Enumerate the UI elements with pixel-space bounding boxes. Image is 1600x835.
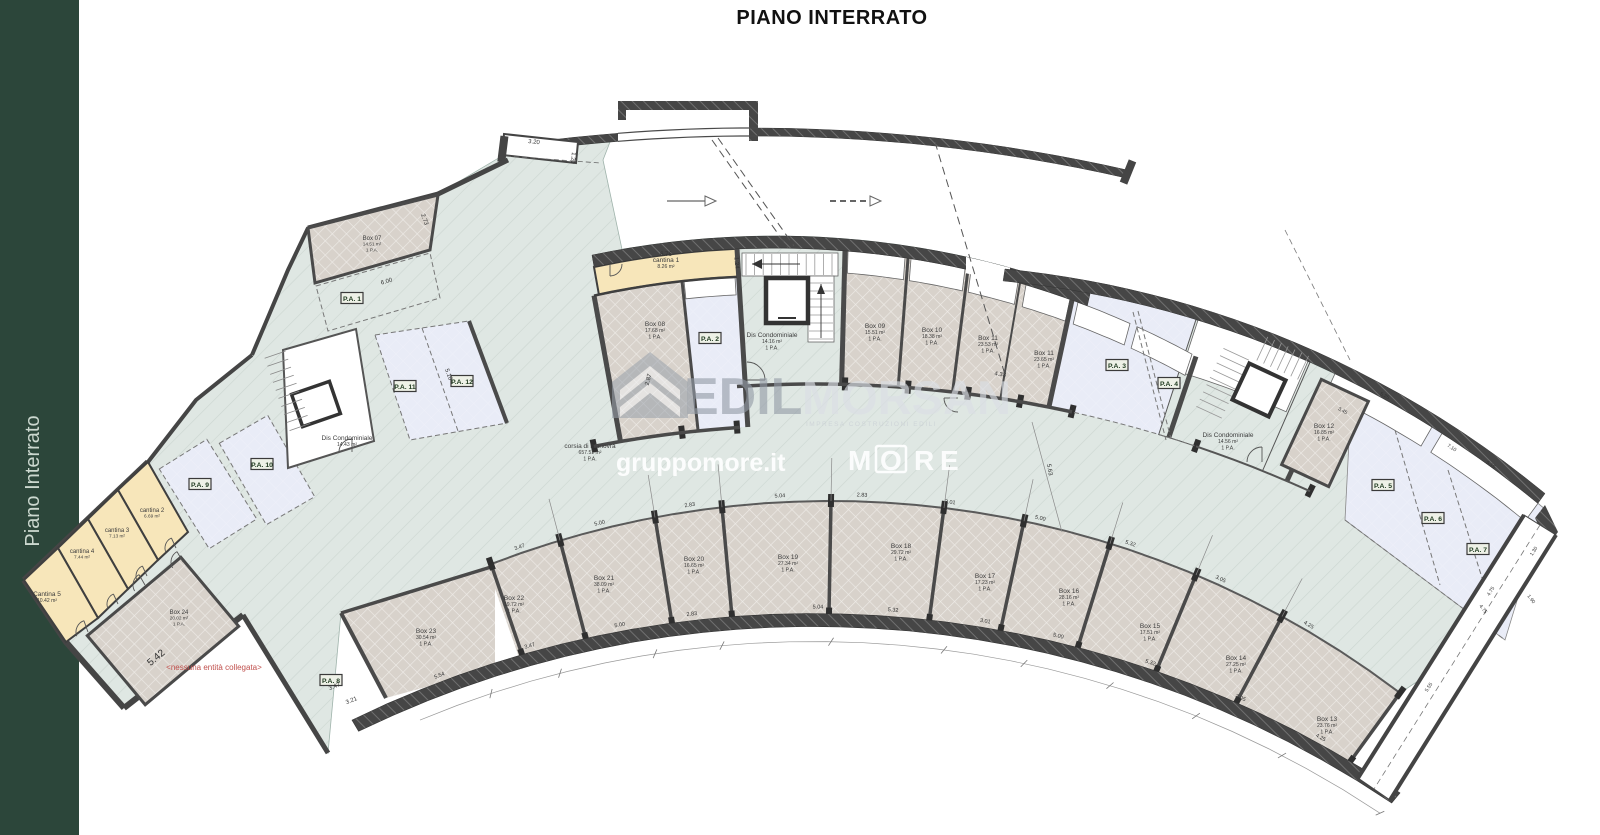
svg-text:2.83: 2.83	[857, 492, 868, 498]
svg-text:P.A. 3: P.A. 3	[1108, 363, 1126, 370]
svg-text:1 P.A.: 1 P.A.	[868, 336, 881, 342]
svg-text:1 P.A.: 1 P.A.	[1320, 729, 1333, 735]
svg-text:Box 18: Box 18	[891, 543, 912, 550]
svg-text:R: R	[914, 445, 934, 476]
svg-text:23.65 m²: 23.65 m²	[1034, 357, 1054, 363]
svg-text:P.A. 9: P.A. 9	[191, 482, 209, 489]
svg-text:1 P.A.: 1 P.A.	[597, 588, 610, 594]
svg-text:P.A. 10: P.A. 10	[251, 462, 273, 469]
svg-text:1.24: 1.24	[732, 257, 739, 270]
svg-text:Box 17: Box 17	[975, 573, 996, 580]
svg-text:Box 13: Box 13	[1317, 716, 1338, 723]
svg-text:6.69 m²: 6.69 m²	[144, 514, 160, 519]
svg-text:19.72 m²: 19.72 m²	[504, 602, 524, 608]
svg-text:1 P.A.: 1 P.A.	[1221, 445, 1234, 451]
svg-text:2.83: 2.83	[686, 611, 697, 618]
svg-text:7.44 m²: 7.44 m²	[74, 555, 90, 560]
svg-text:P.A. 4: P.A. 4	[1160, 381, 1178, 388]
svg-text:1 P.A.: 1 P.A.	[1037, 363, 1050, 369]
svg-text:1 P.A.: 1 P.A.	[781, 567, 794, 573]
svg-text:EDIL: EDIL	[684, 368, 802, 426]
svg-text:20.02 m²: 20.02 m²	[170, 616, 189, 621]
svg-text:27.34 m²: 27.34 m²	[778, 561, 798, 567]
svg-text:MORSAN: MORSAN	[802, 371, 1011, 424]
svg-text:18.38 m²: 18.38 m²	[922, 334, 942, 340]
svg-text:28.16 m²: 28.16 m²	[1059, 595, 1079, 601]
svg-text:P.A. 12: P.A. 12	[451, 379, 473, 386]
svg-text:10.42 m²: 10.42 m²	[37, 598, 57, 604]
svg-text:3.20: 3.20	[528, 139, 541, 146]
svg-text:17.23 m²: 17.23 m²	[975, 580, 995, 586]
svg-text:Box 09: Box 09	[865, 323, 886, 330]
svg-text:23.53 m²: 23.53 m²	[978, 342, 998, 348]
svg-text:Box 16: Box 16	[1059, 588, 1080, 595]
svg-text:Box 22: Box 22	[504, 595, 525, 602]
svg-text:Box 12: Box 12	[1314, 423, 1335, 430]
svg-text:Box 11: Box 11	[978, 335, 998, 342]
svg-text:1 P.A.: 1 P.A.	[507, 608, 520, 614]
svg-text:Box 23: Box 23	[416, 628, 437, 635]
svg-text:M: M	[848, 445, 871, 476]
svg-text:corsia di manovra: corsia di manovra	[564, 443, 616, 450]
svg-text:1 P.A.: 1 P.A.	[173, 621, 185, 626]
svg-text:Box 21: Box 21	[594, 575, 615, 582]
svg-text:Box 11: Box 11	[1034, 350, 1054, 357]
svg-text:657.51 m²: 657.51 m²	[579, 450, 602, 456]
svg-text:IMPRESA COSTRUZIONI EDILI: IMPRESA COSTRUZIONI EDILI	[806, 421, 937, 428]
svg-text:Box 08: Box 08	[645, 321, 666, 328]
svg-text:1 P.A.: 1 P.A.	[1317, 436, 1330, 442]
svg-text:1 P.A.: 1 P.A.	[648, 334, 661, 340]
svg-text:14.51 m²: 14.51 m²	[363, 242, 382, 247]
svg-text:14.43 m²: 14.43 m²	[337, 442, 357, 448]
svg-text:<nessuna entità collegata>: <nessuna entità collegata>	[166, 663, 262, 672]
svg-text:1 P.A.: 1 P.A.	[894, 556, 907, 562]
svg-text:27.25 m²: 27.25 m²	[1226, 662, 1246, 668]
svg-text:1 P.A.: 1 P.A.	[978, 586, 991, 592]
svg-text:cantina 1: cantina 1	[653, 257, 680, 264]
svg-text:PIANO INTERRATO: PIANO INTERRATO	[736, 7, 927, 29]
svg-text:15.51 m²: 15.51 m²	[865, 330, 885, 336]
svg-text:P.A. 1: P.A. 1	[343, 296, 361, 303]
svg-text:Box 19: Box 19	[778, 554, 799, 561]
svg-text:P.A. 7: P.A. 7	[1469, 547, 1487, 554]
svg-text:38.09 m²: 38.09 m²	[594, 582, 614, 588]
svg-text:Dis Condominiale: Dis Condominiale	[322, 435, 373, 442]
svg-text:E: E	[940, 445, 959, 476]
svg-text:17.51 m²: 17.51 m²	[1140, 630, 1160, 636]
svg-text:P.A. 2: P.A. 2	[701, 336, 719, 343]
svg-text:1 P.A.: 1 P.A.	[419, 641, 432, 647]
svg-text:Box 10: Box 10	[922, 327, 943, 334]
svg-text:1 P.A.: 1 P.A.	[981, 348, 994, 354]
svg-text:5.32: 5.32	[888, 607, 899, 614]
svg-text:Box 20: Box 20	[684, 556, 705, 563]
svg-text:14.16 m²: 14.16 m²	[762, 339, 782, 345]
svg-text:6.76: 6.76	[660, 252, 672, 258]
svg-text:1 P.A.: 1 P.A.	[1062, 601, 1075, 607]
svg-text:17.68 m²: 17.68 m²	[645, 328, 665, 334]
svg-text:1 P.A.: 1 P.A.	[765, 345, 778, 351]
svg-text:8.26 m²: 8.26 m²	[657, 264, 675, 270]
svg-text:P.A. 5: P.A. 5	[1374, 483, 1392, 490]
svg-text:1 P.A.: 1 P.A.	[583, 456, 596, 462]
svg-text:14.56 m²: 14.56 m²	[1218, 439, 1238, 445]
svg-text:Cantina 5: Cantina 5	[33, 591, 61, 598]
svg-text:16.85 m²: 16.85 m²	[1314, 430, 1334, 436]
svg-text:5.04: 5.04	[813, 604, 824, 610]
svg-text:Piano Interrato: Piano Interrato	[22, 415, 44, 546]
svg-text:Dis Condominiale: Dis Condominiale	[1203, 432, 1254, 439]
svg-text:7.13 m²: 7.13 m²	[109, 534, 125, 539]
svg-text:Box 15: Box 15	[1140, 623, 1161, 630]
svg-text:1 P.A.: 1 P.A.	[687, 569, 700, 575]
svg-text:1.20: 1.20	[569, 152, 576, 165]
svg-text:Box 14: Box 14	[1226, 655, 1247, 662]
svg-text:1 P.A.: 1 P.A.	[925, 340, 938, 346]
svg-text:5.04: 5.04	[774, 493, 785, 500]
svg-text:16.65 m²: 16.65 m²	[684, 563, 704, 569]
svg-text:1 P.A.: 1 P.A.	[1229, 668, 1242, 674]
svg-text:30.54 m²: 30.54 m²	[416, 635, 436, 641]
svg-text:1 P.A.: 1 P.A.	[1143, 636, 1156, 642]
svg-text:P.A. 6: P.A. 6	[1424, 516, 1442, 523]
svg-text:29.72 m²: 29.72 m²	[891, 550, 911, 556]
svg-text:1 P.A.: 1 P.A.	[366, 247, 378, 252]
svg-text:Dis Condominiale: Dis Condominiale	[747, 332, 798, 339]
svg-text:gruppomore.it: gruppomore.it	[616, 449, 786, 477]
svg-text:23.76 m²: 23.76 m²	[1317, 723, 1337, 729]
svg-text:P.A. 11: P.A. 11	[394, 384, 416, 391]
